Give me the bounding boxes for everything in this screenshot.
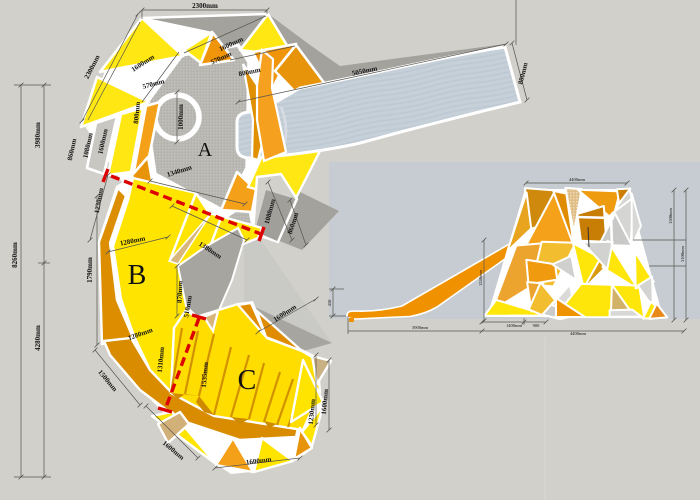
svg-text:1500mm: 1500mm	[668, 208, 673, 225]
svg-text:B: B	[128, 260, 147, 291]
svg-text:8260mm: 8260mm	[11, 242, 19, 268]
svg-text:3100mm: 3100mm	[680, 246, 685, 263]
svg-text:2300mm: 2300mm	[192, 2, 218, 10]
svg-text:1240mm: 1240mm	[478, 270, 483, 287]
svg-text:4400mm: 4400mm	[570, 331, 587, 336]
svg-text:A: A	[198, 139, 213, 161]
svg-text:450: 450	[327, 299, 332, 307]
svg-text:1790mm: 1790mm	[86, 257, 94, 283]
svg-text:1400mm: 1400mm	[506, 323, 523, 328]
svg-text:3980mm: 3980mm	[34, 122, 42, 148]
svg-text:900: 900	[533, 323, 541, 328]
svg-text:C: C	[238, 365, 257, 396]
svg-text:1000mm: 1000mm	[177, 104, 185, 130]
svg-text:3900mm: 3900mm	[412, 325, 429, 330]
svg-text:4400mm: 4400mm	[569, 177, 586, 182]
svg-text:4280mm: 4280mm	[34, 325, 42, 351]
svg-text:870mm: 870mm	[176, 281, 185, 304]
